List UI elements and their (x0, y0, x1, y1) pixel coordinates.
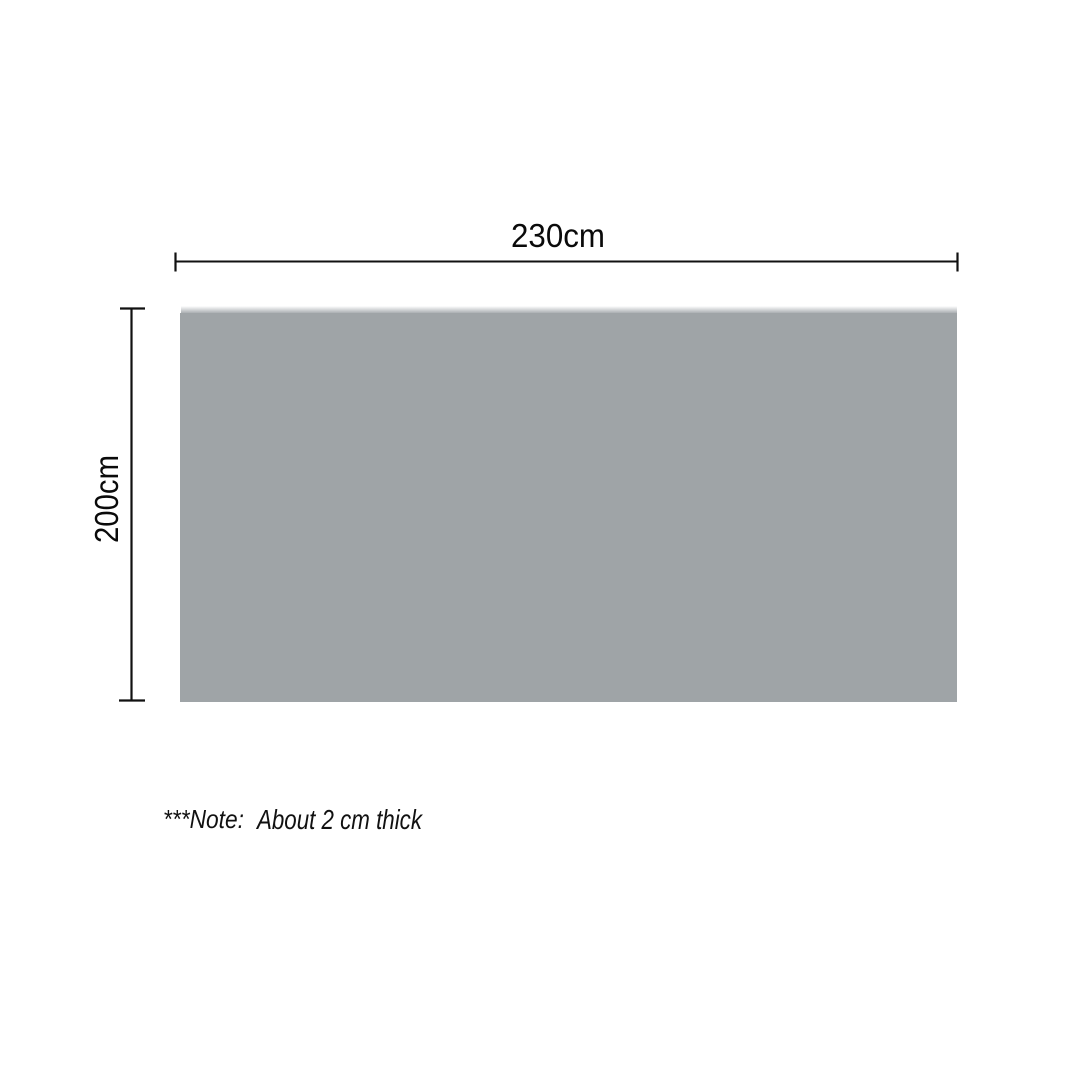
svg-text:About 2 cm thick: About 2 cm thick (255, 804, 423, 835)
svg-text:200cm: 200cm (88, 455, 125, 543)
svg-text:230cm: 230cm (511, 217, 605, 254)
svg-text:***Note:: ***Note: (163, 804, 244, 834)
